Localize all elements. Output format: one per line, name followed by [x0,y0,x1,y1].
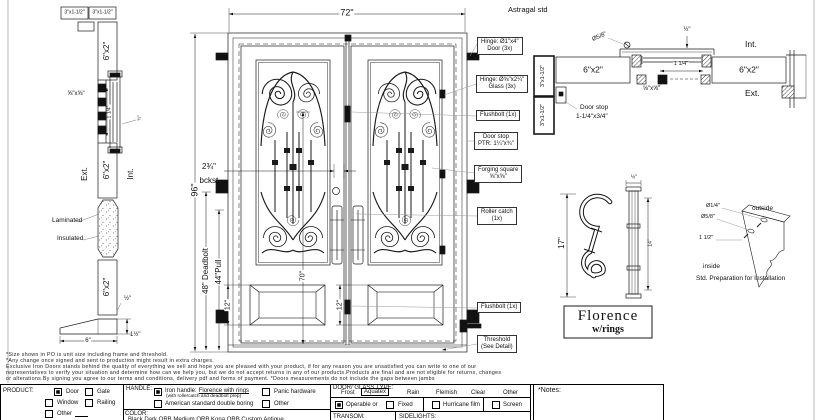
jamb-tube-mid-label: 6"x2" [103,161,111,180]
callout-roller-catch: Roller catch(1x) [477,207,517,225]
checkbox-hurricane-film[interactable] [432,401,440,409]
door-width-dim: 72" [339,8,354,17]
checkbox-product-other[interactable] [45,410,53,418]
product-gate-label: Gate [97,389,110,395]
jamb-stop-half-dim: ½" [138,115,143,120]
astragal-int-label: Int. [745,40,757,49]
option-rain[interactable]: Rain [407,390,419,396]
iron-handle-sub-label: (with rollercatch and deadbolt prep) [166,394,241,399]
astragal-jamb-1-label: 3"x1-1/2" [541,65,547,87]
jamb-tube-top-label: 6"x2" [103,42,111,61]
threshold-height-dim: 1½" [130,332,140,338]
product-railing-label: Railing [97,400,115,406]
astragal-tube-right-label: 6"x2" [739,66,759,75]
jamb-forging-label: ⅝"x⅝" [67,91,84,97]
checkbox-product-door[interactable] [54,388,62,396]
install-hole2-dim: Ø5/8" [701,215,715,221]
deadbolt-height-dim: 48" Deadbolt [202,247,210,295]
callout-threshold: Threshold(See Detail) [477,335,517,353]
option-flemish[interactable]: Flemish [436,390,457,396]
jamb-cap-1: 3"x1-1/2" [64,10,84,15]
astragal-doorstop-dim: 1-1/4"x3/4" [576,114,608,121]
disclaimer-line-5: or alterations.By signing you agree to o… [6,377,435,383]
install-inside-label: inside [703,264,720,271]
jamb-int-label: Int. [127,168,135,179]
handle-sub-label: w/rings [592,325,624,336]
product-other-blank[interactable] [75,410,88,417]
panel-left-dim: 12" [224,299,231,311]
transom-label: TRANSOM: [333,414,365,420]
astragal-jamb-2-label: 3"x1-1/2" [541,104,547,126]
jamb-glass-gap-dim: 1 1/4" [107,105,112,120]
handle-side-height-dim: 14" [648,238,653,247]
product-window-label: Window [57,400,78,406]
shop-drawing-sheet: 3"x1-1/2" 3"x1-1/2" 6"x2" ⅝"x⅝" 1 1/4" ½… [0,0,826,420]
checkbox-fixed[interactable] [386,401,394,409]
astragal-ext-label: Ext. [745,89,760,98]
door-height-dim: 96" [190,182,199,197]
product-label: PRODUCT: [3,388,34,394]
handle-other-label: Other [274,401,289,407]
jamb-tube-bottom-label: 6"x2" [103,278,111,297]
checkbox-product-gate[interactable] [85,388,93,396]
insulated-label: Insulated [57,236,83,243]
glass-height-dim: 70" [299,270,306,282]
astragal-tube-left-label: 6"x2" [583,66,603,75]
panic-hardware-label: Panic hardware [274,389,316,395]
sidelights-label: SIDELIGHTS: [399,414,436,420]
checkbox-american-standard[interactable] [154,400,162,408]
pull-height-dim: 44"Pull [215,258,223,285]
form-border-top [0,384,533,385]
callout-hinge-door: Hinge: Ø1"x4"Door (3x) [477,37,523,55]
handle-height-dim: 17" [558,236,566,250]
checkbox-iron-handle[interactable] [154,388,162,396]
screen-label: Screen [503,402,522,408]
jamb-ext-label: Ext. [81,167,89,181]
handle-section-label: HANDLE: [126,386,152,392]
handle-side-width-dim: ½" [631,175,637,180]
install-offset-dim: 1 1/2" [699,236,713,242]
callout-door-stop: Door stopPTR: 1¼"x¾" [474,132,518,150]
hurricane-film-label: Hurricane film [443,402,480,408]
operable-label: Operable or [346,402,378,408]
astragal-doorstop-label: Door stop [580,105,608,112]
astragal-title: Astragal std [508,6,548,14]
option-clear[interactable]: Clear [471,390,485,396]
product-door-label: Door [66,389,79,395]
astragal-section-art [534,36,806,134]
threshold-width-dim: 6" [84,338,91,344]
callout-flushbolt-top: Flushbolt (1x) [476,110,520,121]
callout-flushbolt-bottom: Flushbolt (1x) [477,302,521,313]
product-other-label: Other [57,411,72,417]
astragal-half-dim: ½" [683,27,690,33]
install-hole1-dim: Ø1/4" [706,204,720,210]
backset-label: bckst. [200,177,221,185]
checkbox-screen[interactable] [492,401,500,409]
jamb-cap-2: 3"x1-1/2" [92,10,112,15]
backset-dim: 2¾" [202,163,216,171]
checkbox-product-window[interactable] [45,399,53,407]
handle-name-label: Florence [578,309,638,325]
option-aquatex[interactable]: Aquatex [361,388,389,396]
fixed-label: Fixed [398,402,413,408]
checkbox-panic-hardware[interactable] [262,388,270,396]
option-frost[interactable]: Frost [341,390,355,396]
panel-right-dim: 12" [336,299,343,311]
american-standard-label: American standard double boring [165,401,253,407]
jamb-half-dim: ½" [124,296,131,302]
checkbox-handle-other[interactable] [262,400,270,408]
install-caption: Std. Preparation for Installation [696,276,785,283]
callout-hinge-glass: Hinge: Ø⅝"x2¼"Glass (3x) [476,75,528,93]
checkbox-operable[interactable] [335,401,343,409]
option-glass-other[interactable]: Other [503,390,518,396]
astragal-gap-dim: 1 1/4" [673,62,689,68]
install-outside-label: outside [752,206,773,213]
astragal-forging-dim: ⅝"x⅝" [643,86,660,92]
callout-forging-square: Forging square⅝"x⅝" [474,165,522,183]
jamb-section-art [60,7,136,344]
notes-label: *Notes: [538,387,561,394]
laminated-label: Laminated [52,218,82,225]
checkbox-product-railing[interactable] [85,399,93,407]
